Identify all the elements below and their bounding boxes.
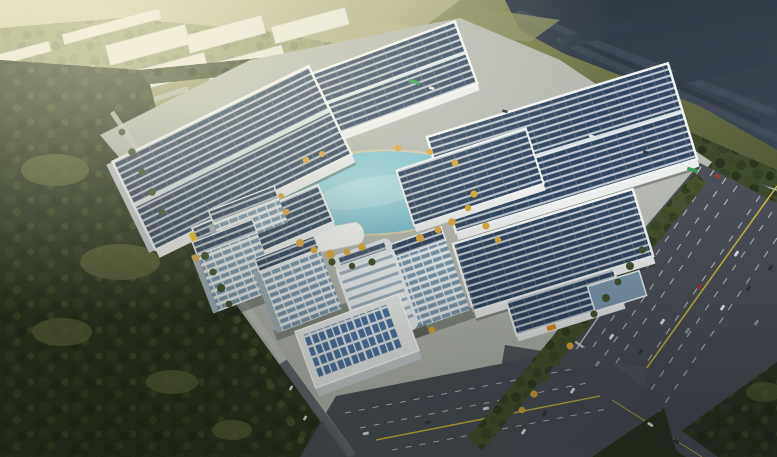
aerial-render <box>0 0 777 457</box>
vignette-bottom-right <box>0 0 777 457</box>
campus-scene <box>0 0 777 457</box>
